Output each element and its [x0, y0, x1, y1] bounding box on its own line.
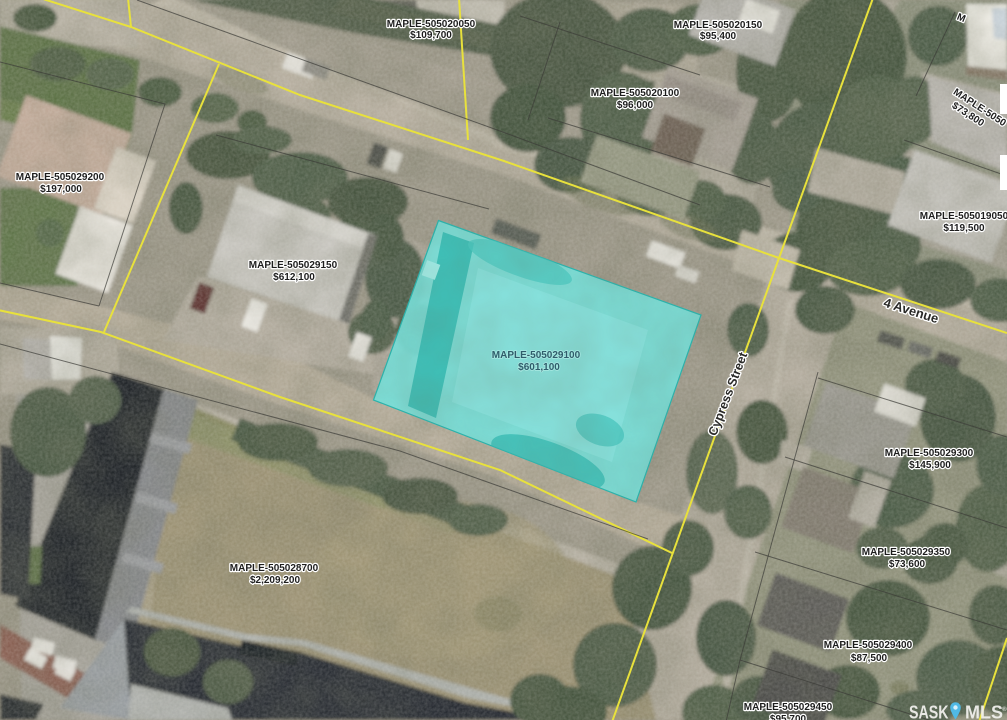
svg-text:MAPLE-505020050: MAPLE-505020050 [387, 19, 476, 30]
svg-text:MAPLE-505029200: MAPLE-505029200 [16, 172, 105, 183]
svg-text:$145,900: $145,900 [909, 460, 951, 471]
svg-text:MAPLE-505029150: MAPLE-505029150 [249, 260, 338, 271]
svg-text:MAPLE-505028700: MAPLE-505028700 [230, 563, 319, 574]
svg-text:$96,000: $96,000 [617, 100, 654, 111]
svg-text:$601,100: $601,100 [518, 362, 560, 373]
svg-text:$119,500: $119,500 [943, 223, 985, 234]
svg-text:$95,400: $95,400 [700, 31, 737, 42]
svg-text:$109,700: $109,700 [410, 30, 452, 41]
svg-text:MAPLE-505020150: MAPLE-505020150 [674, 20, 763, 31]
svg-text:MAPLE-505020100: MAPLE-505020100 [591, 88, 680, 99]
svg-text:$197,000: $197,000 [40, 184, 82, 195]
svg-text:SASK: SASK [909, 703, 949, 720]
svg-text:$87,500: $87,500 [851, 653, 888, 664]
svg-text:$612,100: $612,100 [273, 272, 315, 283]
svg-text:®: ® [1002, 705, 1007, 713]
svg-text:MAPLE-505019050: MAPLE-505019050 [920, 211, 1007, 222]
svg-text:MAPLE-505029400: MAPLE-505029400 [824, 640, 913, 651]
svg-text:$95,700: $95,700 [770, 714, 807, 720]
svg-text:MAPLE-505029450: MAPLE-505029450 [744, 702, 833, 713]
svg-text:$2,209,200: $2,209,200 [250, 575, 300, 586]
svg-text:MAPLE-505029300: MAPLE-505029300 [885, 448, 974, 459]
svg-text:MLS: MLS [965, 703, 1003, 720]
svg-text:MAPLE-505029100: MAPLE-505029100 [492, 350, 581, 361]
svg-text:$73,600: $73,600 [889, 559, 926, 570]
svg-text:MAPLE-505029350: MAPLE-505029350 [862, 547, 951, 558]
